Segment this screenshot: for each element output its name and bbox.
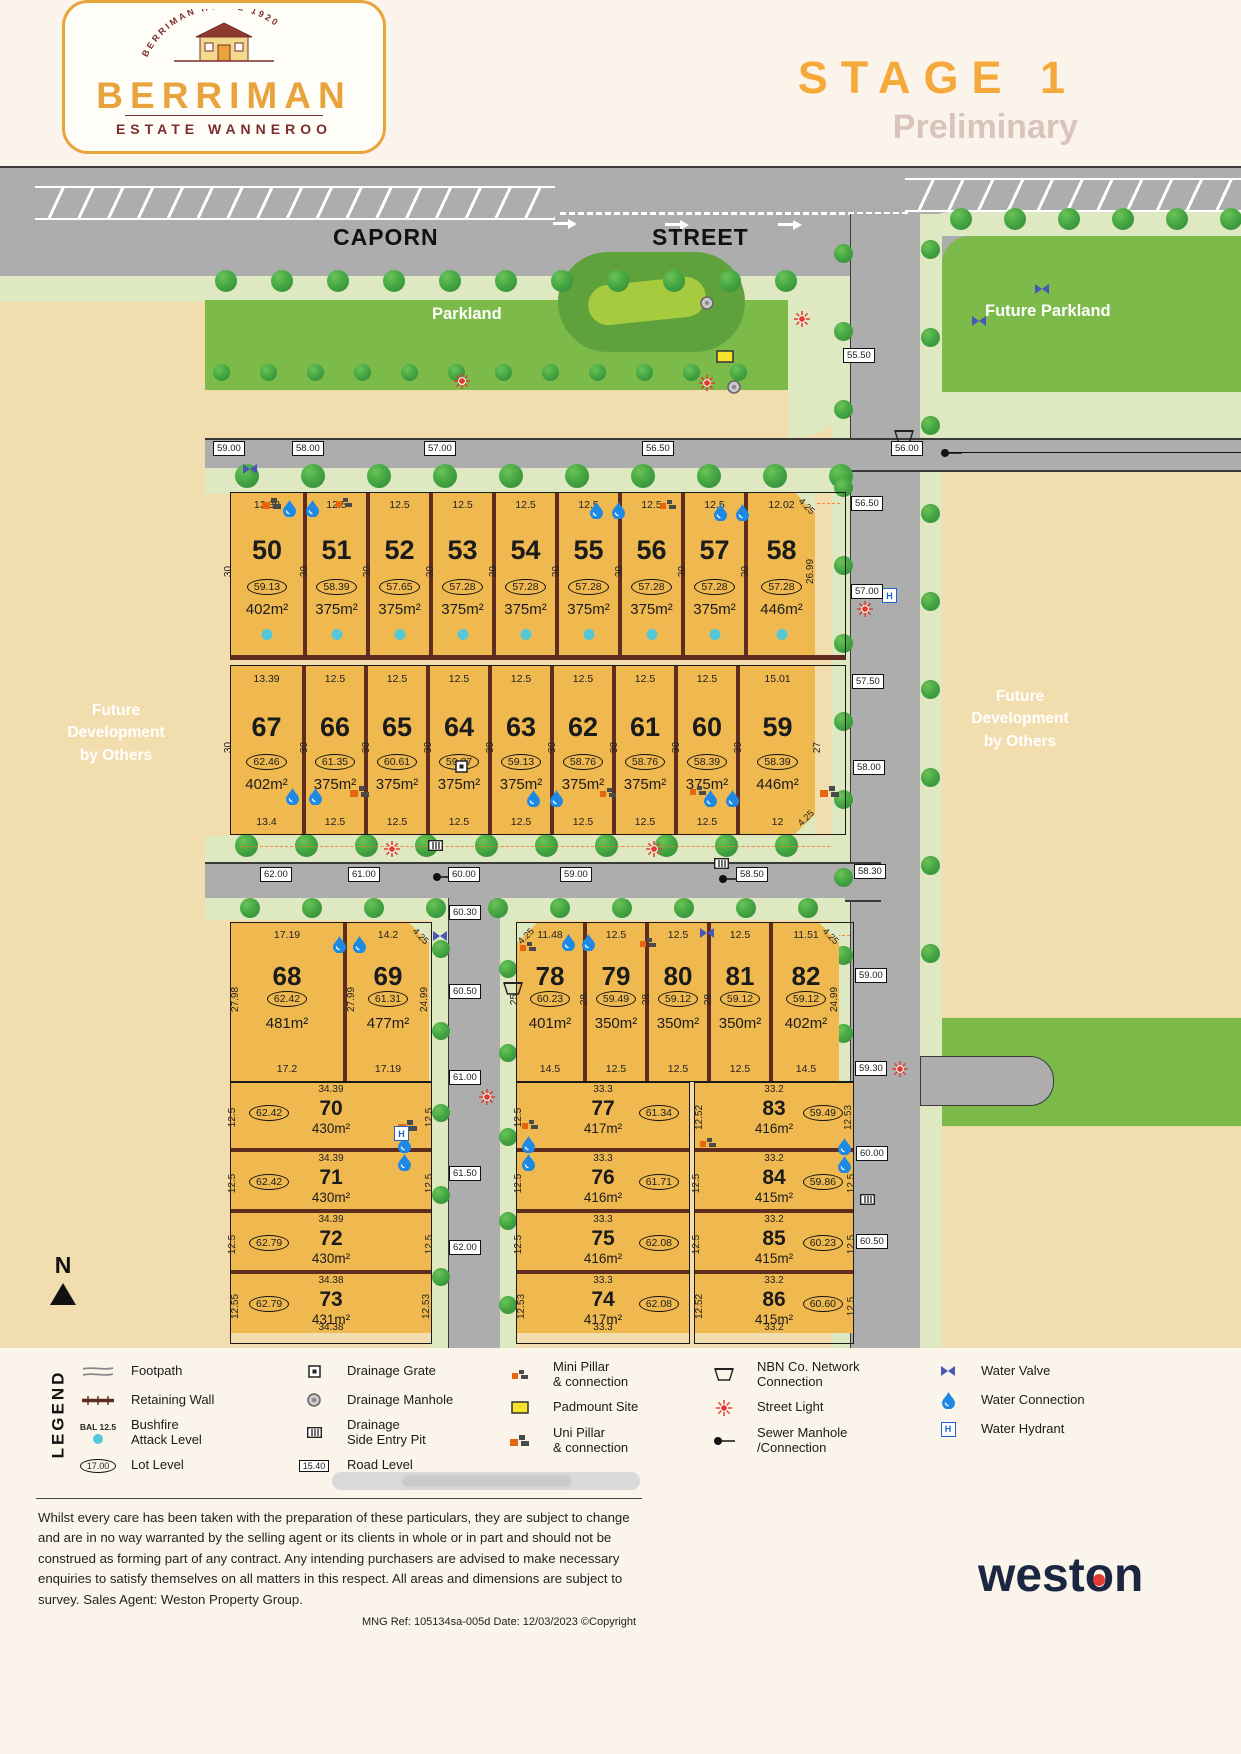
lot-area: 375m² — [307, 601, 366, 618]
lot-frontage-dim: 12.5 — [368, 673, 426, 685]
lot-row-67-59: 13.396762.46402m²13.4303012.56661.35375m… — [230, 665, 846, 835]
tree-icon — [636, 364, 653, 381]
lot-frontage-dim: 12.5 — [430, 673, 488, 685]
tree-icon — [426, 898, 446, 918]
padmount-icon — [496, 1401, 544, 1414]
lot-frontage-dim: 12.5 — [306, 673, 364, 685]
lot-area: 416m² — [695, 1121, 853, 1136]
future-dev-line: Development — [46, 722, 186, 744]
lot-frontage-dim: 12.5 — [559, 499, 618, 511]
tree-icon — [488, 898, 508, 918]
future-dev-line: by Others — [950, 731, 1090, 753]
lot-50: 13.385059.13402m²30 — [231, 493, 303, 655]
lot-level-row: 58.39 — [307, 577, 366, 595]
road-level-box: 56.00 — [891, 441, 923, 456]
sewer-icon — [700, 1436, 748, 1446]
lot-number: 62 — [554, 712, 612, 743]
lot-level: 62.42 — [267, 991, 307, 1007]
lot-level-row: 59.49 — [587, 989, 645, 1007]
legend-label: Bushfire Attack Level — [131, 1418, 202, 1448]
lot-level-row: 62.46 — [231, 752, 302, 770]
drainage-grate-icon — [455, 760, 468, 773]
lot-63: 12.56359.13375m²12.530 — [488, 666, 550, 834]
lot-area: 375m² — [685, 601, 744, 618]
lot-frontage-dim: 12.5 — [678, 673, 736, 685]
lot-area: 375m² — [496, 601, 555, 618]
uni-pillar-icon — [820, 786, 840, 798]
lot-level: 57.65 — [379, 579, 419, 595]
tree-icon — [834, 400, 853, 419]
lot-side-dim: 12.5 — [424, 1234, 435, 1253]
lot-row-50-58: 13.385059.13402m²3012.55158.39375m²3012.… — [230, 492, 846, 660]
bal-dot-icon — [520, 629, 531, 640]
lot-level-row: 60.61 — [368, 752, 426, 770]
bal-dot-icon — [331, 629, 342, 640]
lot-side-dim: 12.53 — [421, 1294, 432, 1319]
lot-number: 50 — [231, 535, 303, 566]
legend-label: Sewer Manhole /Connection — [757, 1426, 847, 1456]
lot-number: 80 — [649, 961, 707, 992]
drainage-sep-icon — [860, 1194, 875, 1205]
lot-side-dim: 30 — [299, 742, 310, 753]
lot-frontage-dim: 12.5 — [492, 673, 550, 685]
future-parkland-label: Future Parkland — [985, 302, 1111, 321]
lot-side-dim: 30 — [609, 742, 620, 753]
lot-rear-dim: 17.2 — [231, 1063, 343, 1075]
lot-level: 60.23 — [530, 991, 570, 1007]
bal-icon: BAL 12.5 — [74, 1422, 122, 1444]
lot-level-row: 58.39 — [740, 752, 815, 770]
tree-icon — [834, 868, 853, 887]
mini-pillar-icon — [640, 938, 657, 948]
tree-icon — [271, 270, 293, 292]
water-connection-icon — [590, 502, 603, 519]
tree-icon — [499, 1128, 517, 1146]
lot-area: 415m² — [695, 1190, 853, 1205]
road-level-box: 58.00 — [853, 760, 885, 775]
mini-pillar-icon — [600, 788, 617, 798]
lot-area: 375m² — [368, 776, 426, 793]
lot-side-dim: 27.98 — [230, 987, 241, 1012]
logo-divider — [125, 115, 323, 116]
lot-68: 17.196862.42481m²17.227.98 — [231, 923, 343, 1081]
lot-rear-dim: 12.5 — [711, 1063, 769, 1075]
water-hydrant-icon: H — [882, 588, 897, 603]
central-road — [448, 898, 502, 1348]
lot-area: 402m² — [773, 1015, 839, 1032]
lot-area: 430m² — [231, 1190, 431, 1205]
weston-o-mark: o — [1085, 1549, 1114, 1602]
tree-icon — [607, 270, 629, 292]
lot-side-dim: 30 — [425, 566, 436, 577]
lot-rear-dim: 12.5 — [678, 816, 736, 828]
road-level-box: 62.00 — [449, 1240, 481, 1255]
lot-51: 12.55158.39375m²30 — [303, 493, 366, 655]
water-connection-icon — [309, 788, 322, 805]
tree-icon — [663, 270, 685, 292]
lot-level-row: 59.13 — [492, 752, 550, 770]
preliminary-watermark: Preliminary — [893, 108, 1078, 147]
lot-number: 61 — [616, 712, 674, 743]
water-valve-icon — [700, 928, 714, 938]
tree-icon — [1004, 208, 1026, 230]
legend-column: Drainage GrateDrainage ManholeDrainage S… — [290, 1360, 453, 1477]
disclaimer-text: Whilst every care has been taken with th… — [38, 1508, 638, 1610]
lot-level: 58.39 — [757, 754, 797, 770]
drainage-sep-icon — [714, 858, 729, 869]
tree-icon — [798, 898, 818, 918]
lot-area: 416m² — [517, 1190, 689, 1205]
lot-side-dim: 12.5 — [513, 1234, 524, 1253]
road-level-box: 60.30 — [449, 905, 481, 920]
mid-internal-road — [205, 862, 881, 902]
lot-rear-dim: 12.5 — [649, 1063, 707, 1075]
water-connection-icon — [333, 936, 346, 953]
water-valve-icon — [433, 931, 447, 941]
site-plan-map: CAPORNSTREETFuture ParklandParklandFutur… — [0, 0, 1241, 1754]
lot-rear-dim: 33.3 — [517, 1322, 689, 1333]
water-connection-icon — [726, 790, 739, 807]
lot-side-dim: 12.5 — [513, 1173, 524, 1192]
lot-level-row: 61.31 — [347, 989, 429, 1007]
lot-side-dim: 24.99 — [829, 987, 840, 1012]
road-level-box: 60.50 — [856, 1234, 888, 1249]
lot-81: 12.58159.12350m²12.528 — [707, 923, 769, 1081]
road-level-box: 57.00 — [424, 441, 456, 456]
future-development-left-label: FutureDevelopmentby Others — [46, 700, 186, 767]
lot-area: 401m² — [517, 1015, 583, 1032]
water-hydrant-icon: H — [394, 1126, 409, 1141]
water-connection-icon — [527, 790, 540, 807]
lot-area: 430m² — [231, 1251, 431, 1266]
logo-arc-text: BERRIMAN HOUSE 1920 — [114, 9, 334, 67]
lot-number: 60 — [678, 712, 736, 743]
lot-84: 33.284415m²59.8612.512.5 — [695, 1148, 853, 1209]
water-connection-icon — [550, 790, 563, 807]
legend-column: Water ValveWater ConnectionHWater Hydran… — [924, 1360, 1085, 1440]
lot-side-dim: 28 — [641, 994, 652, 1005]
lot-number: 68 — [231, 961, 343, 992]
lot-number: 64 — [430, 712, 488, 743]
lot-level: 62.42 — [249, 1174, 289, 1190]
tree-icon — [565, 464, 589, 488]
lot-level-row: 59.12 — [649, 989, 707, 1007]
water-connection-icon — [522, 1136, 535, 1153]
drainage-manhole-icon — [700, 296, 714, 310]
lot-side-dim: 12.5 — [227, 1234, 238, 1253]
lot-area: 446m² — [748, 601, 815, 618]
legend-item: Drainage Grate — [290, 1360, 453, 1382]
lot-58: 12.025857.28446m²3026.994.25 — [744, 493, 815, 655]
tree-icon — [499, 1044, 517, 1062]
tree-icon — [499, 464, 523, 488]
lot-77: 33.377417m²61.3412.5 — [517, 1083, 689, 1148]
tree-icon — [213, 364, 230, 381]
stage-title: STAGE 1 — [798, 52, 1078, 104]
lot-62: 12.56258.76375m²12.530 — [550, 666, 612, 834]
tree-icon — [542, 364, 559, 381]
lot-rear-dim: 12.5 — [430, 816, 488, 828]
lot-level-row: 61.35 — [306, 752, 364, 770]
footer-divider — [36, 1498, 642, 1499]
lot-side-dim: 12.5 — [691, 1173, 702, 1192]
sewer-icon — [940, 448, 962, 458]
street-light-icon — [645, 840, 663, 858]
footpath-icon — [74, 1365, 122, 1378]
turn-arrow-icon — [553, 222, 569, 225]
lot-side-dim: 12.5 — [424, 1108, 435, 1127]
road-level-box: 56.50 — [851, 496, 883, 511]
tree-icon — [550, 898, 570, 918]
lot-54: 12.55457.28375m²30 — [492, 493, 555, 655]
lot-depth-dim: 33.2 — [695, 1153, 853, 1164]
top-internal-road — [205, 438, 1241, 472]
legend-item: NBN Co. Network Connection — [700, 1360, 860, 1390]
lot-side-dim: 30 — [733, 742, 744, 753]
lot-level-row: 57.28 — [622, 577, 681, 595]
lot-level: 62.79 — [249, 1235, 289, 1251]
lot-area: 477m² — [347, 1015, 429, 1032]
legend-label: Water Hydrant — [981, 1422, 1064, 1437]
lot-level-row: 58.76 — [616, 752, 674, 770]
future-dev-line: by Others — [46, 745, 186, 767]
lot-number: 54 — [496, 535, 555, 566]
lot-side-dim: 30 — [299, 566, 310, 577]
lot-side-dim: 12.5 — [227, 1173, 238, 1192]
tree-icon — [432, 1268, 450, 1286]
padmount-icon — [716, 350, 734, 363]
street-light-icon — [478, 1088, 496, 1106]
lot-number: 79 — [587, 961, 645, 992]
lot-side-dim: 28 — [579, 994, 590, 1005]
legend-column: NBN Co. Network ConnectionStreet LightSe… — [700, 1360, 860, 1456]
lot-level: 61.35 — [315, 754, 355, 770]
weston-logo: weston — [978, 1548, 1143, 1603]
road-level-icon: 15.40 — [290, 1460, 338, 1472]
tree-icon — [921, 680, 940, 699]
lot-side-dim: 30 — [547, 742, 558, 753]
mini-pillar-icon — [700, 1138, 717, 1148]
lot-side-dim: 26.99 — [805, 559, 816, 584]
estate-plan-page: CAPORNSTREETFuture ParklandParklandFutur… — [0, 0, 1241, 1754]
street-light-icon — [383, 840, 401, 858]
lot-side-dim: 30 — [361, 742, 372, 753]
lot-block-68-69: 17.196862.42481m²17.227.9814.26961.31477… — [230, 922, 432, 1082]
mini-pillar-icon — [336, 498, 353, 508]
lot-level-row: 60.23 — [517, 989, 583, 1007]
lot-side-dim: 27.99 — [346, 987, 357, 1012]
legend-item: Mini Pillar & connection — [496, 1360, 638, 1390]
lot-number: 66 — [306, 712, 364, 743]
north-arrow-icon — [50, 1283, 76, 1305]
lot-level: 58.76 — [625, 754, 665, 770]
east-road-stub — [920, 1056, 1054, 1106]
lot-level: 58.39 — [316, 579, 356, 595]
lot-66: 12.56661.35375m²12.530 — [302, 666, 364, 834]
bal-dot-icon — [583, 629, 594, 640]
future-dev-line: Development — [950, 708, 1090, 730]
road-level-box: 57.50 — [852, 674, 884, 689]
lot-rear-dim: 14.5 — [773, 1063, 839, 1075]
lot-level: 60.60 — [803, 1296, 843, 1312]
lot-level: 59.12 — [658, 991, 698, 1007]
drawing-reference: MNG Ref: 105134sa-005d Date: 12/03/2023 … — [362, 1616, 636, 1628]
tree-icon — [215, 270, 237, 292]
legend-item: Street Light — [700, 1397, 860, 1419]
tree-icon — [834, 322, 853, 341]
water-valve-icon — [243, 464, 257, 474]
drainage-sep-icon — [290, 1427, 338, 1438]
legend-label: Retaining Wall — [131, 1393, 214, 1408]
lot-col-83-86: 33.283416m²59.4912.5212.5333.284415m²59.… — [694, 1082, 854, 1344]
tree-icon — [499, 1212, 517, 1230]
lot-rear-dim: 12.5 — [587, 1063, 645, 1075]
drainage-manhole-icon — [290, 1393, 338, 1407]
lot-level: 59.12 — [786, 991, 826, 1007]
tree-icon — [1220, 208, 1241, 230]
lot-area: 375m² — [370, 601, 429, 618]
lot-depth-dim: 33.3 — [517, 1153, 689, 1164]
tree-icon — [495, 364, 512, 381]
legend-label: Padmount Site — [553, 1400, 638, 1415]
nbn-icon — [700, 1368, 748, 1381]
tree-icon — [921, 240, 940, 259]
lot-75: 33.375416m²62.0812.5 — [517, 1209, 689, 1270]
tree-icon — [921, 856, 940, 875]
lot-depth-dim: 34.39 — [231, 1084, 431, 1095]
lot-side-dim: 30 — [488, 566, 499, 577]
drainage-sep-icon — [428, 840, 443, 851]
lot-55: 12.55557.28375m²30 — [555, 493, 618, 655]
lot-level: 61.34 — [639, 1105, 679, 1121]
tree-icon — [921, 944, 940, 963]
nbn-icon — [502, 982, 524, 995]
lot-number: 52 — [370, 535, 429, 566]
lot-level-row: 59.13 — [231, 577, 303, 595]
lot-rear-dim: 17.19 — [347, 1063, 429, 1075]
tree-icon — [730, 364, 747, 381]
tree-icon — [439, 270, 461, 292]
lot-area: 350m² — [587, 1015, 645, 1032]
lot-side-dim: 12.52 — [694, 1294, 705, 1319]
lot-level: 59.49 — [596, 991, 636, 1007]
road-level-box: 55.50 — [843, 348, 875, 363]
parkland-label: Parkland — [432, 305, 502, 324]
lot-area: 350m² — [649, 1015, 707, 1032]
legend-item: Padmount Site — [496, 1397, 638, 1419]
lot-number: 55 — [559, 535, 618, 566]
lot-57: 12.55757.28375m²30 — [681, 493, 744, 655]
lot-depth-dim: 33.3 — [517, 1275, 689, 1286]
water-connection-icon — [522, 1154, 535, 1171]
lot-area: 375m² — [430, 776, 488, 793]
lot-67: 13.396762.46402m²13.43030 — [231, 666, 302, 834]
right-road — [850, 214, 922, 1348]
tree-icon — [697, 464, 721, 488]
uni-pillar-icon — [262, 498, 282, 510]
lot-rear-dim: 34.38 — [231, 1322, 431, 1333]
street-light-icon — [700, 1399, 748, 1417]
lot-76: 33.376416m²61.7112.5 — [517, 1148, 689, 1209]
tree-icon — [354, 364, 371, 381]
tree-icon — [1058, 208, 1080, 230]
lot-side-dim: 12.5 — [227, 1108, 238, 1127]
tree-icon — [383, 270, 405, 292]
lot-rear-dim: 13.4 — [231, 816, 302, 828]
legend-label: Water Connection — [981, 1393, 1085, 1408]
future-dev-line: Future — [46, 700, 186, 722]
tree-icon — [834, 244, 853, 263]
lot-rear-dim: 12.5 — [616, 816, 674, 828]
lot-frontage-dim: 12.5 — [370, 499, 429, 511]
lot-level: 62.46 — [246, 754, 286, 770]
future-development-right-label: FutureDevelopmentby Others — [950, 686, 1090, 753]
lot-level: 59.49 — [803, 1105, 843, 1121]
legend-label: Street Light — [757, 1400, 824, 1415]
lot-side-dim: 12.5 — [846, 1296, 857, 1315]
bal-dot-icon — [457, 629, 468, 640]
lot-52: 12.55257.65375m²30 — [366, 493, 429, 655]
retaining-wall-icon — [74, 1396, 122, 1405]
lot-area: 481m² — [231, 1015, 343, 1032]
street-light-icon — [891, 1060, 909, 1078]
lot-number: 53 — [433, 535, 492, 566]
street-light-icon — [793, 310, 811, 328]
lot-number: 57 — [685, 535, 744, 566]
lot-rear-dim: 12.5 — [492, 816, 550, 828]
sewer-line — [944, 452, 1241, 453]
mini-pillar-icon — [496, 1370, 544, 1380]
tree-icon — [736, 898, 756, 918]
lot-col-77-74: 33.377417m²61.3412.533.376416m²61.7112.5… — [516, 1082, 690, 1344]
lot-level: 62.79 — [249, 1296, 289, 1312]
lot-level: 59.13 — [247, 579, 287, 595]
lot-level: 57.28 — [761, 579, 801, 595]
tree-icon — [495, 270, 517, 292]
lot-side-dim: 30 — [223, 566, 234, 577]
tree-icon — [367, 464, 391, 488]
lot-side-dim: 12.55 — [230, 1294, 241, 1319]
erased-watermark-bar — [332, 1472, 640, 1490]
legend-item: HWater Hydrant — [924, 1418, 1085, 1440]
lot-level-row: 57.65 — [370, 577, 429, 595]
lot-level: 60.61 — [377, 754, 417, 770]
lot-level: 57.28 — [505, 579, 545, 595]
tree-icon — [921, 328, 940, 347]
lot-level-row: 57.28 — [496, 577, 555, 595]
legend-label: Drainage Manhole — [347, 1393, 453, 1408]
water-connection-icon — [398, 1154, 411, 1171]
lot-depth-dim: 33.3 — [517, 1084, 689, 1095]
legend-item: Water Valve — [924, 1360, 1085, 1382]
logo-name: BERRIMAN — [65, 75, 383, 117]
lot-side-dim: 30 — [551, 566, 562, 577]
service-conduit-line — [240, 846, 830, 847]
lot-level: 57.28 — [631, 579, 671, 595]
tree-icon — [401, 364, 418, 381]
lot-level: 61.71 — [639, 1174, 679, 1190]
lot-depth-dim: 34.38 — [231, 1275, 431, 1286]
lot-56: 12.55657.28375m²30 — [618, 493, 681, 655]
water-connection-icon — [582, 934, 595, 951]
lot-number: 69 — [347, 961, 429, 992]
lot-side-dim: 30 — [423, 742, 434, 753]
road-level-box: 62.00 — [260, 867, 292, 882]
water-connection-icon — [353, 936, 366, 953]
water-connection-icon — [714, 504, 727, 521]
future-parkland-verge — [928, 212, 1241, 236]
street-light-icon — [698, 374, 716, 392]
